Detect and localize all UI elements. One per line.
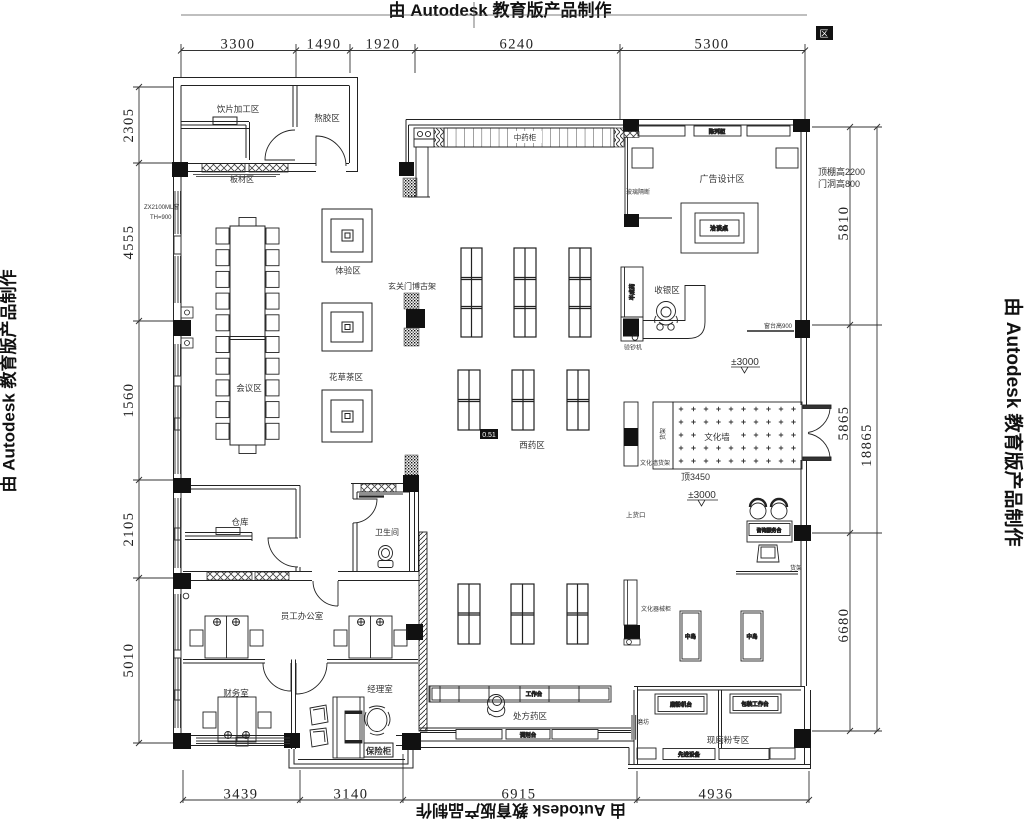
svg-text:3140: 3140 bbox=[334, 787, 369, 803]
svg-text:区: 区 bbox=[819, 29, 828, 39]
svg-text:文化器械柜: 文化器械柜 bbox=[641, 605, 671, 613]
svg-text:±3000: ±3000 bbox=[688, 490, 716, 501]
svg-text:工作台: 工作台 bbox=[526, 690, 543, 698]
svg-text:5810: 5810 bbox=[836, 206, 852, 241]
svg-text:仓库: 仓库 bbox=[231, 517, 249, 527]
svg-text:会议区: 会议区 bbox=[236, 383, 262, 393]
svg-text:饮片加工区: 饮片加工区 bbox=[217, 104, 260, 114]
svg-text:熬胶区: 熬胶区 bbox=[314, 113, 340, 123]
svg-text:收银区: 收银区 bbox=[654, 285, 680, 295]
svg-text:1920: 1920 bbox=[366, 37, 401, 53]
svg-text:广告设计区: 广告设计区 bbox=[699, 173, 744, 184]
svg-text:门洞高800: 门洞高800 bbox=[818, 178, 860, 189]
svg-text:4555: 4555 bbox=[121, 225, 137, 260]
svg-text:调剂台: 调剂台 bbox=[520, 731, 537, 739]
svg-text:体验区: 体验区 bbox=[335, 266, 361, 276]
svg-text:由 Autodesk 教育版产品制作: 由 Autodesk 教育版产品制作 bbox=[1002, 297, 1024, 546]
svg-text:由 Autodesk 教育版产品制作: 由 Autodesk 教育版产品制作 bbox=[389, 0, 612, 20]
svg-text:现磨粉专区: 现磨粉专区 bbox=[707, 735, 750, 745]
svg-text:3439: 3439 bbox=[224, 787, 259, 803]
svg-text:TH=900: TH=900 bbox=[150, 215, 172, 221]
svg-text:ZX2100ML窗: ZX2100ML窗 bbox=[144, 203, 179, 211]
svg-text:员工办公室: 员工办公室 bbox=[281, 611, 324, 621]
svg-text:5010: 5010 bbox=[121, 643, 137, 678]
svg-text:保险柜: 保险柜 bbox=[365, 746, 392, 756]
svg-text:2105: 2105 bbox=[121, 512, 137, 547]
svg-text:由 Autodesk 教育版产品制作: 由 Autodesk 教育版产品制作 bbox=[416, 801, 626, 819]
svg-text:磨粉机台: 磨粉机台 bbox=[670, 701, 693, 709]
svg-text:顶3450: 顶3450 bbox=[681, 472, 710, 482]
svg-text:文化墙: 文化墙 bbox=[704, 432, 730, 442]
svg-text:2305: 2305 bbox=[121, 108, 137, 143]
svg-text:5300: 5300 bbox=[695, 37, 730, 53]
svg-text:包装工作台: 包装工作台 bbox=[741, 700, 769, 708]
svg-text:5865: 5865 bbox=[836, 406, 852, 441]
svg-text:4936: 4936 bbox=[699, 787, 734, 803]
svg-text:陈列柜: 陈列柜 bbox=[709, 128, 726, 136]
svg-text:窗台高900: 窗台高900 bbox=[764, 322, 793, 330]
svg-text:6680: 6680 bbox=[836, 608, 852, 643]
svg-text:财务室: 财务室 bbox=[223, 688, 249, 698]
svg-text:上货口: 上货口 bbox=[626, 510, 646, 519]
svg-text:先进设备: 先进设备 bbox=[678, 751, 701, 759]
svg-text:洽谈桌: 洽谈桌 bbox=[710, 225, 728, 233]
svg-text:顶棚高2200: 顶棚高2200 bbox=[818, 166, 865, 177]
svg-text:玻璃隔断: 玻璃隔断 bbox=[626, 188, 650, 196]
svg-text:6240: 6240 bbox=[500, 37, 535, 53]
svg-text:中药柜: 中药柜 bbox=[514, 132, 537, 142]
svg-text:中岛: 中岛 bbox=[685, 633, 697, 641]
svg-text:半成药: 半成药 bbox=[628, 283, 636, 300]
svg-text:文化墙货架: 文化墙货架 bbox=[640, 459, 670, 467]
svg-text:板材区: 板材区 bbox=[230, 174, 254, 184]
svg-text:1490: 1490 bbox=[307, 37, 342, 53]
svg-text:花草茶区: 花草茶区 bbox=[329, 372, 364, 382]
svg-text:玄关门博古架: 玄关门博古架 bbox=[388, 281, 436, 291]
svg-text:验钞机: 验钞机 bbox=[624, 344, 642, 352]
svg-text:3300: 3300 bbox=[221, 37, 256, 53]
svg-text:6915: 6915 bbox=[502, 787, 537, 803]
svg-text:货架: 货架 bbox=[659, 428, 667, 440]
svg-text:0.51: 0.51 bbox=[482, 432, 496, 439]
svg-text:±3000: ±3000 bbox=[731, 357, 759, 368]
svg-text:1560: 1560 bbox=[121, 383, 137, 418]
svg-text:咨询服务台: 咨询服务台 bbox=[756, 527, 781, 534]
svg-text:18865: 18865 bbox=[859, 423, 875, 467]
svg-text:卫生间: 卫生间 bbox=[375, 527, 399, 537]
svg-text:西药区: 西药区 bbox=[519, 440, 545, 450]
svg-text:处方药区: 处方药区 bbox=[513, 711, 548, 721]
svg-text:中岛: 中岛 bbox=[746, 633, 758, 641]
svg-text:经理室: 经理室 bbox=[367, 684, 393, 694]
svg-text:磨坊: 磨坊 bbox=[637, 718, 649, 726]
svg-text:货架: 货架 bbox=[790, 564, 802, 572]
svg-text:由 Autodesk 教育版产品制作: 由 Autodesk 教育版产品制作 bbox=[0, 270, 18, 493]
